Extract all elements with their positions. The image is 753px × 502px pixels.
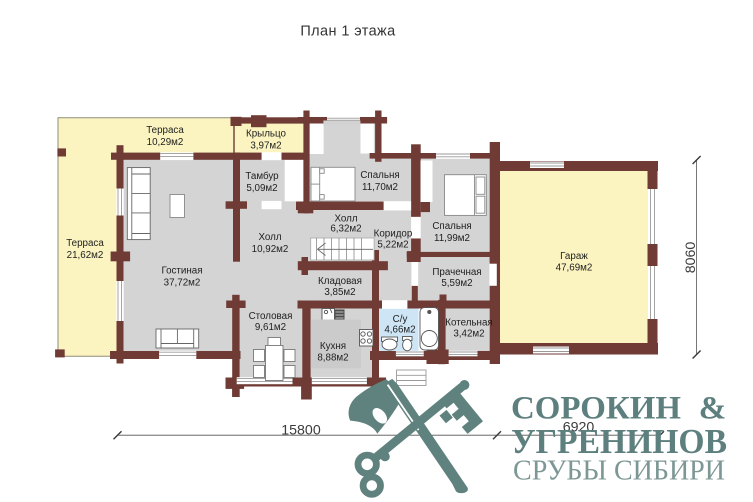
- svg-text:Крыльцо: Крыльцо: [246, 129, 287, 140]
- svg-text:СРУБЫ СИБИРИ: СРУБЫ СИБИРИ: [513, 456, 725, 487]
- svg-text:21,62м2: 21,62м2: [67, 250, 104, 261]
- svg-text:Коридор: Коридор: [374, 229, 413, 240]
- svg-text:47,69м2: 47,69м2: [556, 263, 593, 274]
- svg-text:Гостиная: Гостиная: [161, 266, 202, 277]
- svg-text:11,70м2: 11,70м2: [362, 182, 398, 193]
- svg-text:Гараж: Гараж: [560, 251, 588, 262]
- svg-text:Тамбур: Тамбур: [245, 171, 279, 182]
- svg-text:11,99м2: 11,99м2: [434, 233, 470, 244]
- svg-text:3,42м2: 3,42м2: [453, 329, 484, 340]
- svg-text:37,72м2: 37,72м2: [164, 278, 201, 289]
- svg-text:5,22м2: 5,22м2: [377, 240, 408, 251]
- svg-text:Спальня: Спальня: [432, 221, 471, 232]
- svg-text:15800: 15800: [281, 423, 321, 439]
- svg-text:План 1 этажа: План 1 этажа: [300, 24, 396, 40]
- svg-text:Терраса: Терраса: [66, 238, 104, 249]
- svg-text:5,59м2: 5,59м2: [441, 278, 472, 289]
- svg-text:Прачечная: Прачечная: [432, 267, 481, 278]
- svg-text:Спальня: Спальня: [360, 170, 399, 181]
- svg-text:4,66м2: 4,66м2: [384, 325, 415, 336]
- svg-text:Столовая: Столовая: [249, 311, 293, 322]
- svg-text:10,29м2: 10,29м2: [147, 137, 184, 148]
- svg-text:8060: 8060: [683, 242, 699, 274]
- svg-text:5,09м2: 5,09м2: [246, 183, 277, 194]
- svg-text:3,85м2: 3,85м2: [324, 287, 355, 298]
- svg-text:3,97м2: 3,97м2: [250, 141, 281, 152]
- svg-text:9,61м2: 9,61м2: [255, 322, 286, 333]
- svg-text:Кладовая: Кладовая: [318, 276, 362, 287]
- svg-text:8,88м2: 8,88м2: [317, 353, 348, 364]
- svg-text:Холл: Холл: [258, 232, 281, 243]
- svg-text:10,92м2: 10,92м2: [252, 244, 289, 255]
- svg-text:Кухня: Кухня: [320, 341, 346, 352]
- svg-text:С/у: С/у: [393, 314, 408, 325]
- svg-text:6,32м2: 6,32м2: [330, 224, 361, 235]
- svg-text:Котельная: Котельная: [445, 318, 492, 329]
- svg-text:Терраса: Терраса: [146, 125, 184, 136]
